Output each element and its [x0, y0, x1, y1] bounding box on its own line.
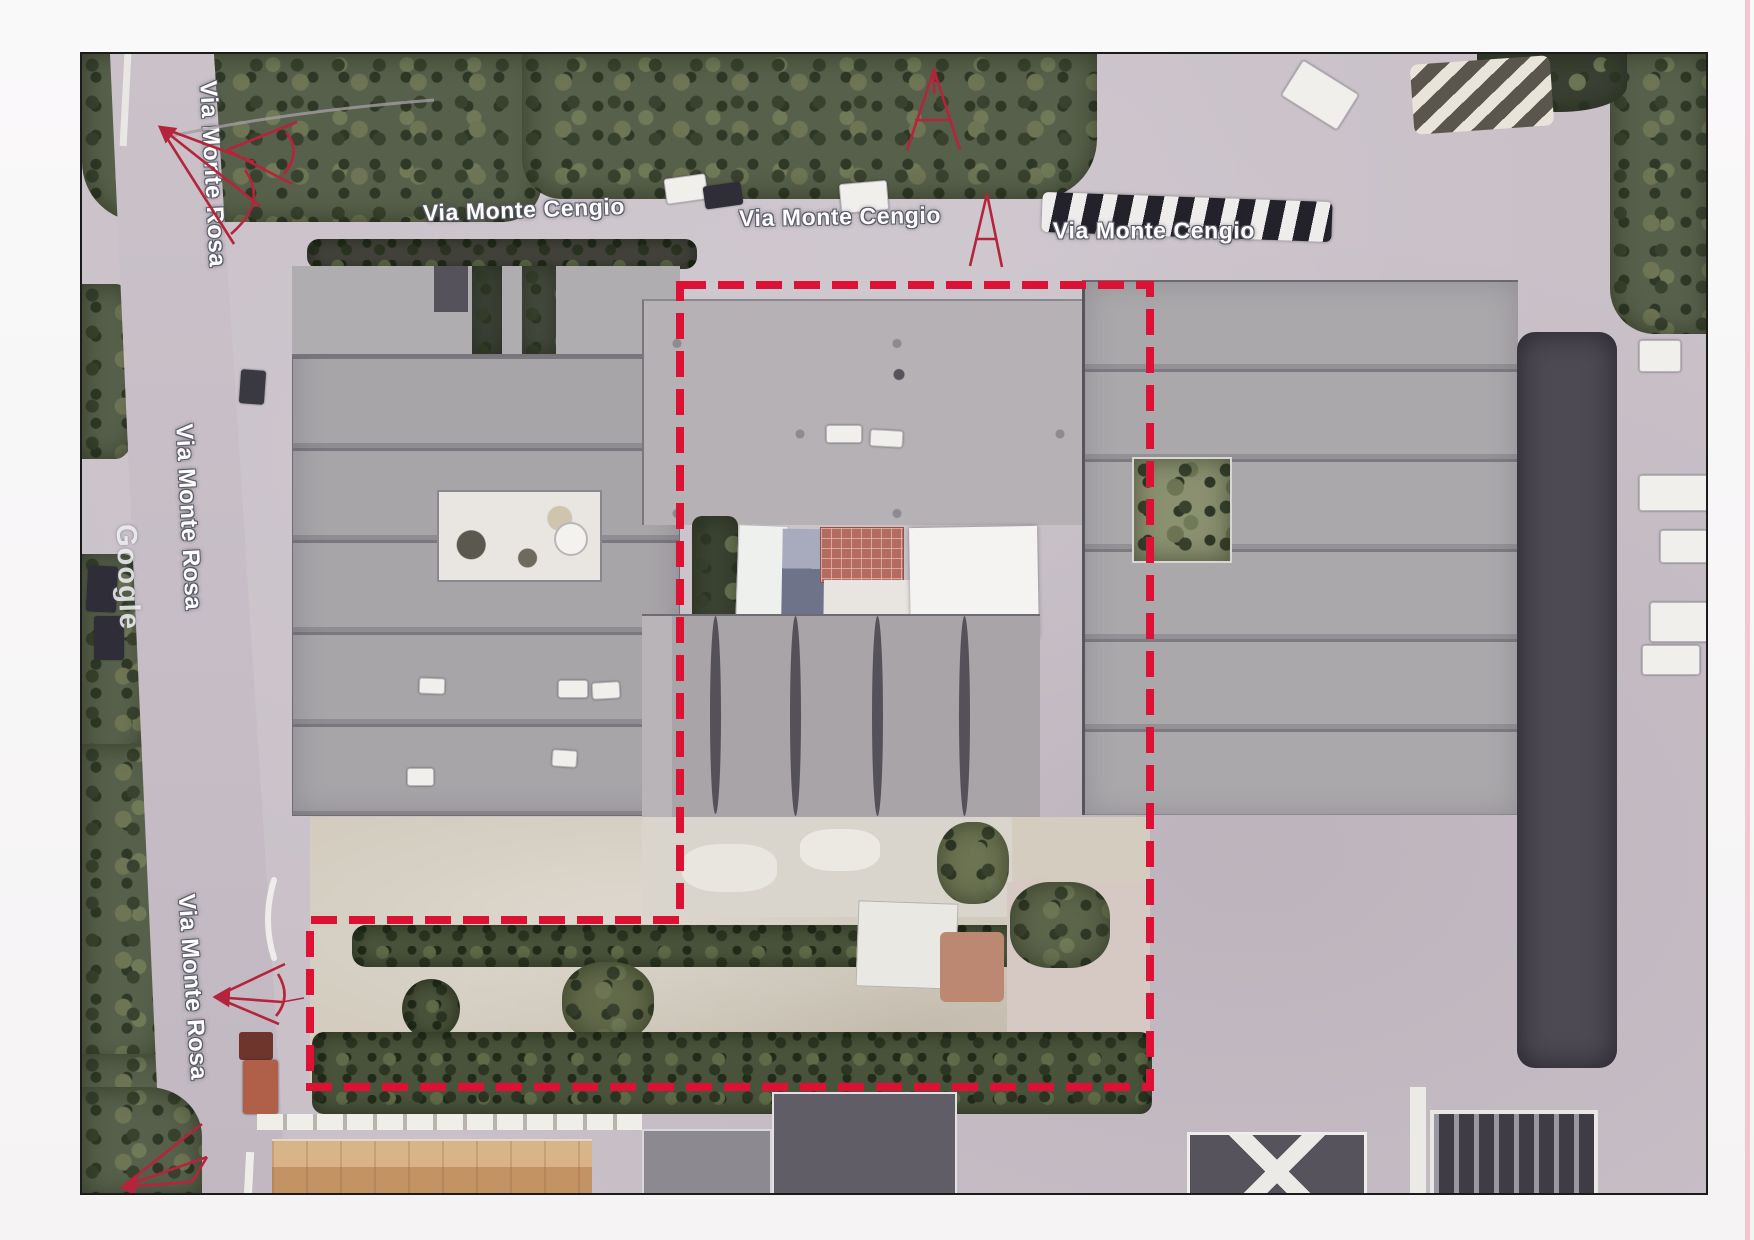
a-mark-trees-top-icon: [907, 70, 960, 150]
a-mark-road-top-icon: [970, 194, 1002, 267]
view-cone-top-left-icon: [160, 127, 260, 244]
view-cone-road-top-icon: [227, 122, 297, 184]
curb-curve: [167, 100, 434, 137]
view-arrow-bottom-left-icon: [122, 1124, 207, 1194]
view-cone-left-road-icon: [215, 964, 304, 1024]
aerial-photo: Via Monte Cengio Via Monte Cengio Via Mo…: [80, 52, 1708, 1195]
property-boundary-dashed: [310, 285, 1150, 1087]
curb-arc-white: [268, 880, 274, 958]
scan-artifact-line: [1745, 0, 1750, 1240]
markup-overlay: [82, 54, 1708, 1195]
scanned-page: Via Monte Cengio Via Monte Cengio Via Mo…: [0, 0, 1754, 1240]
pen-annotations: [122, 70, 1002, 1194]
